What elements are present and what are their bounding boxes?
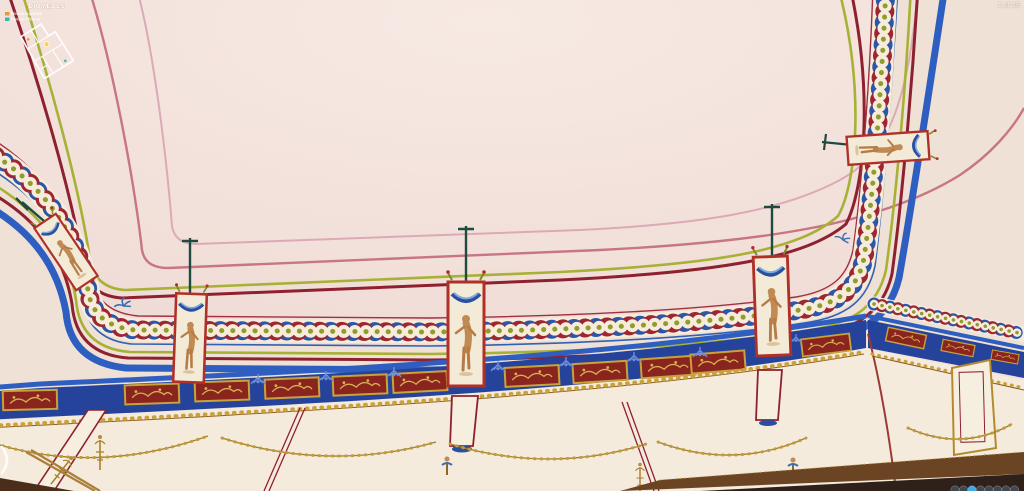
share-icon[interactable] — [1002, 486, 1010, 491]
minimap-legend: Niveau superieur Niveau inferieur — [5, 11, 43, 22]
legend-swatch-upper — [5, 12, 10, 16]
scene-counter: 1 of 15 — [998, 2, 1020, 9]
legend-swatch-lower — [5, 18, 10, 22]
chevron-arc-icon — [2, 447, 7, 473]
panorama-view[interactable] — [0, 0, 1024, 491]
zoom-out-icon[interactable] — [959, 486, 967, 491]
vr-mode-icon[interactable] — [985, 486, 993, 491]
zoom-in-icon[interactable] — [951, 486, 959, 491]
minimap-title: DIOMEDES — [29, 4, 66, 10]
nav-prev-arrow[interactable] — [0, 444, 14, 476]
panorama-viewer[interactable]: DIOMEDES Niveau superieur Niveau inferie… — [0, 0, 1024, 491]
fullscreen-icon[interactable] — [1010, 486, 1018, 491]
viewer-controls — [950, 481, 1022, 491]
minimap-floorplan[interactable] — [19, 20, 73, 79]
autorotate-icon[interactable] — [968, 486, 976, 491]
minimap[interactable]: DIOMEDES Niveau superieur Niveau inferie… — [4, 1, 90, 79]
gyroscope-icon[interactable] — [976, 486, 984, 491]
minimap-position-marker — [43, 41, 50, 48]
legend-label-lower: Niveau inferieur — [11, 17, 41, 22]
legend-label-upper: Niveau superieur — [11, 11, 43, 16]
hotspot-list-icon[interactable] — [993, 486, 1001, 491]
